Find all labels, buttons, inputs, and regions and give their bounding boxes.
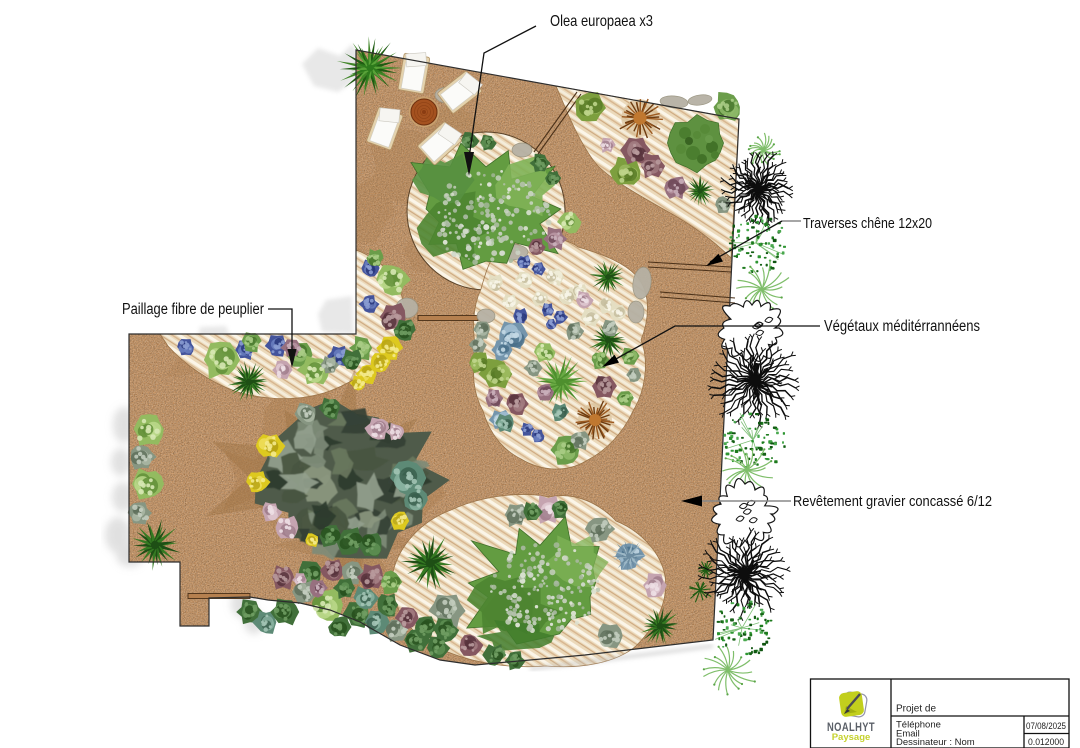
svg-text:0.012000: 0.012000 [1028, 737, 1064, 748]
svg-text:Projet de: Projet de [896, 704, 936, 715]
svg-text:Revêtement gravier concassé 6/: Revêtement gravier concassé 6/12 [793, 493, 992, 510]
svg-text:Traverses chêne 12x20: Traverses chêne 12x20 [803, 215, 932, 232]
svg-text:Végétaux méditérrannéens: Végétaux méditérrannéens [824, 318, 980, 335]
svg-text:Dessinateur : Nom: Dessinateur : Nom [896, 737, 975, 748]
svg-text:Olea europaea x3: Olea europaea x3 [550, 13, 653, 30]
svg-text:07/08/2025: 07/08/2025 [1026, 721, 1066, 732]
svg-text:Paillage fibre de peuplier: Paillage fibre de peuplier [122, 301, 264, 318]
svg-text:Paysage: Paysage [832, 732, 871, 743]
